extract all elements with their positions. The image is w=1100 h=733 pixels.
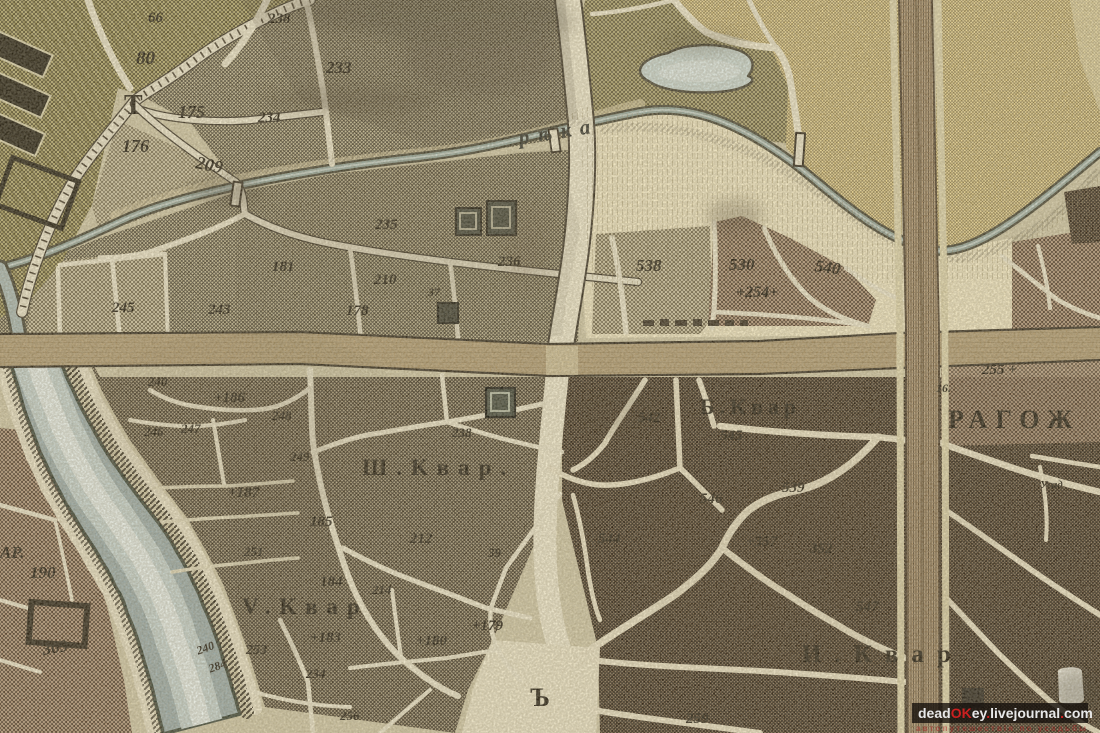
svg-text:deadOKey.livejournal.com: deadOKey.livejournal.com (918, 705, 1093, 721)
